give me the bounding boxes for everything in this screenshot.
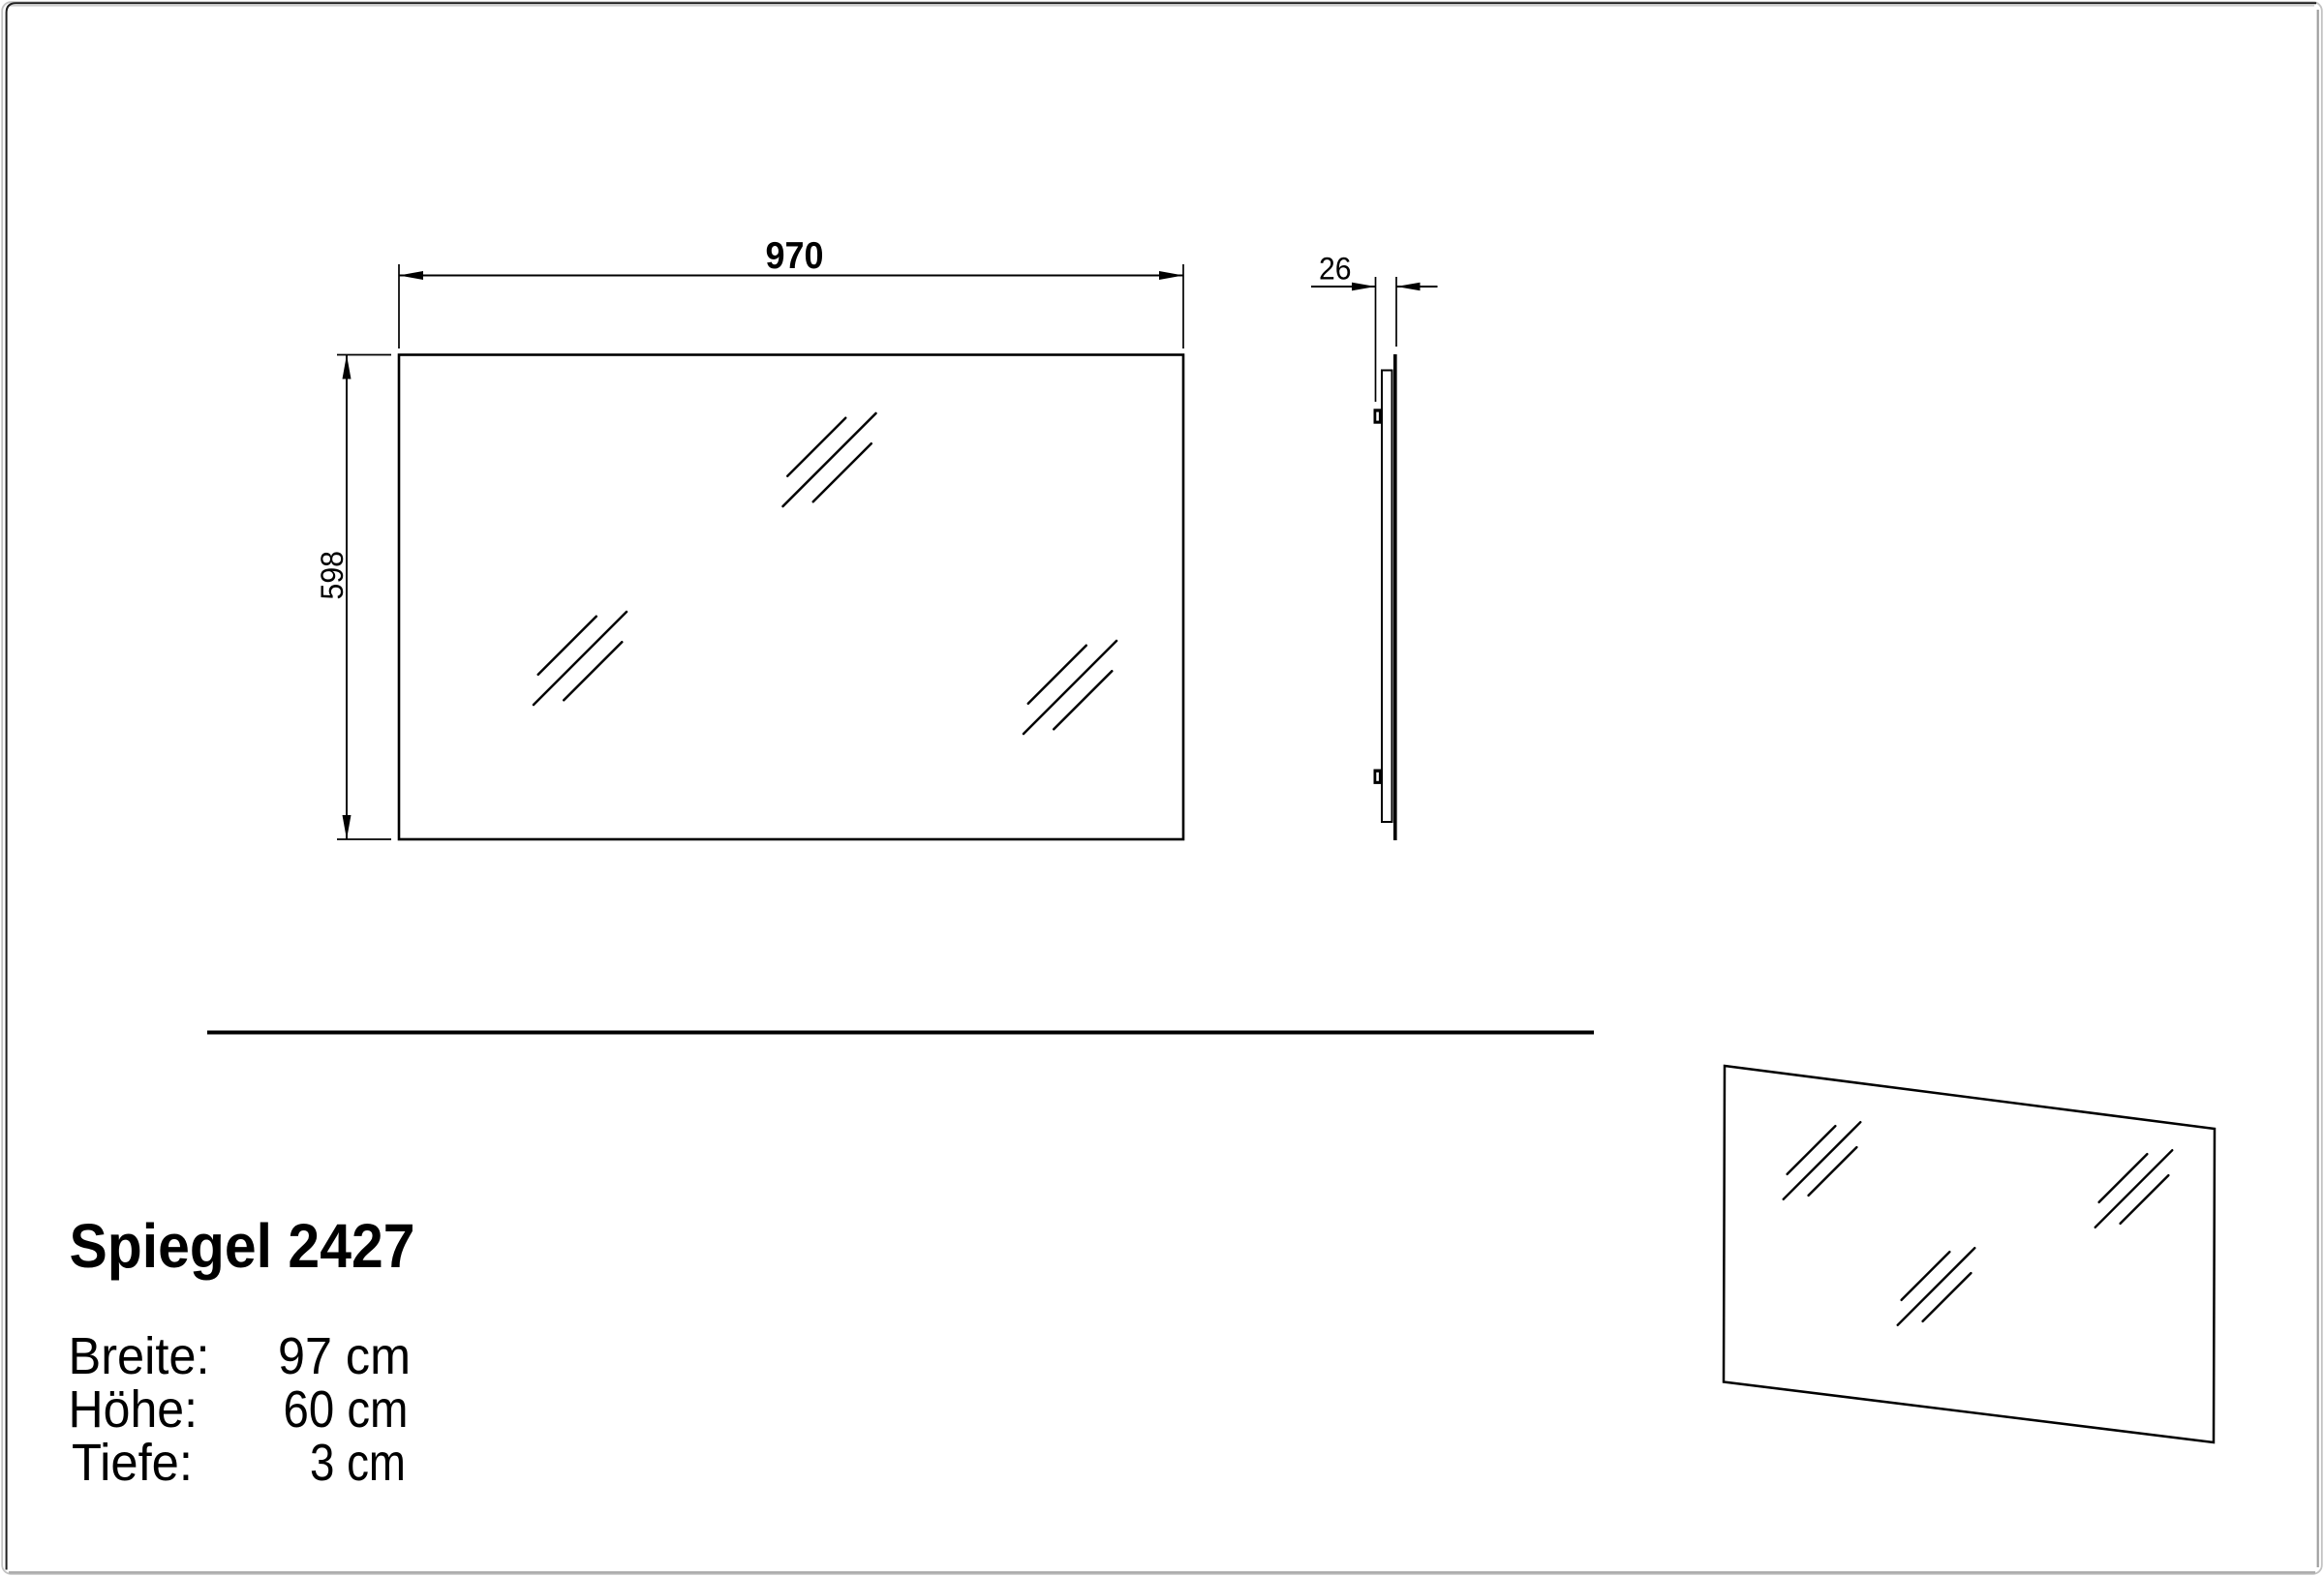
svg-text:Spiegel 2427: Spiegel 2427: [70, 1211, 415, 1281]
svg-text:60 cm: 60 cm: [284, 1380, 409, 1439]
svg-text:3 cm: 3 cm: [310, 1434, 406, 1492]
svg-text:26: 26: [1319, 252, 1352, 287]
svg-text:Breite:: Breite:: [69, 1327, 210, 1385]
svg-text:97 cm: 97 cm: [278, 1327, 411, 1385]
svg-text:Höhe:: Höhe:: [69, 1380, 199, 1439]
svg-text:598: 598: [315, 551, 350, 600]
svg-text:970: 970: [766, 235, 824, 277]
svg-text:Tiefe:: Tiefe:: [72, 1434, 193, 1492]
